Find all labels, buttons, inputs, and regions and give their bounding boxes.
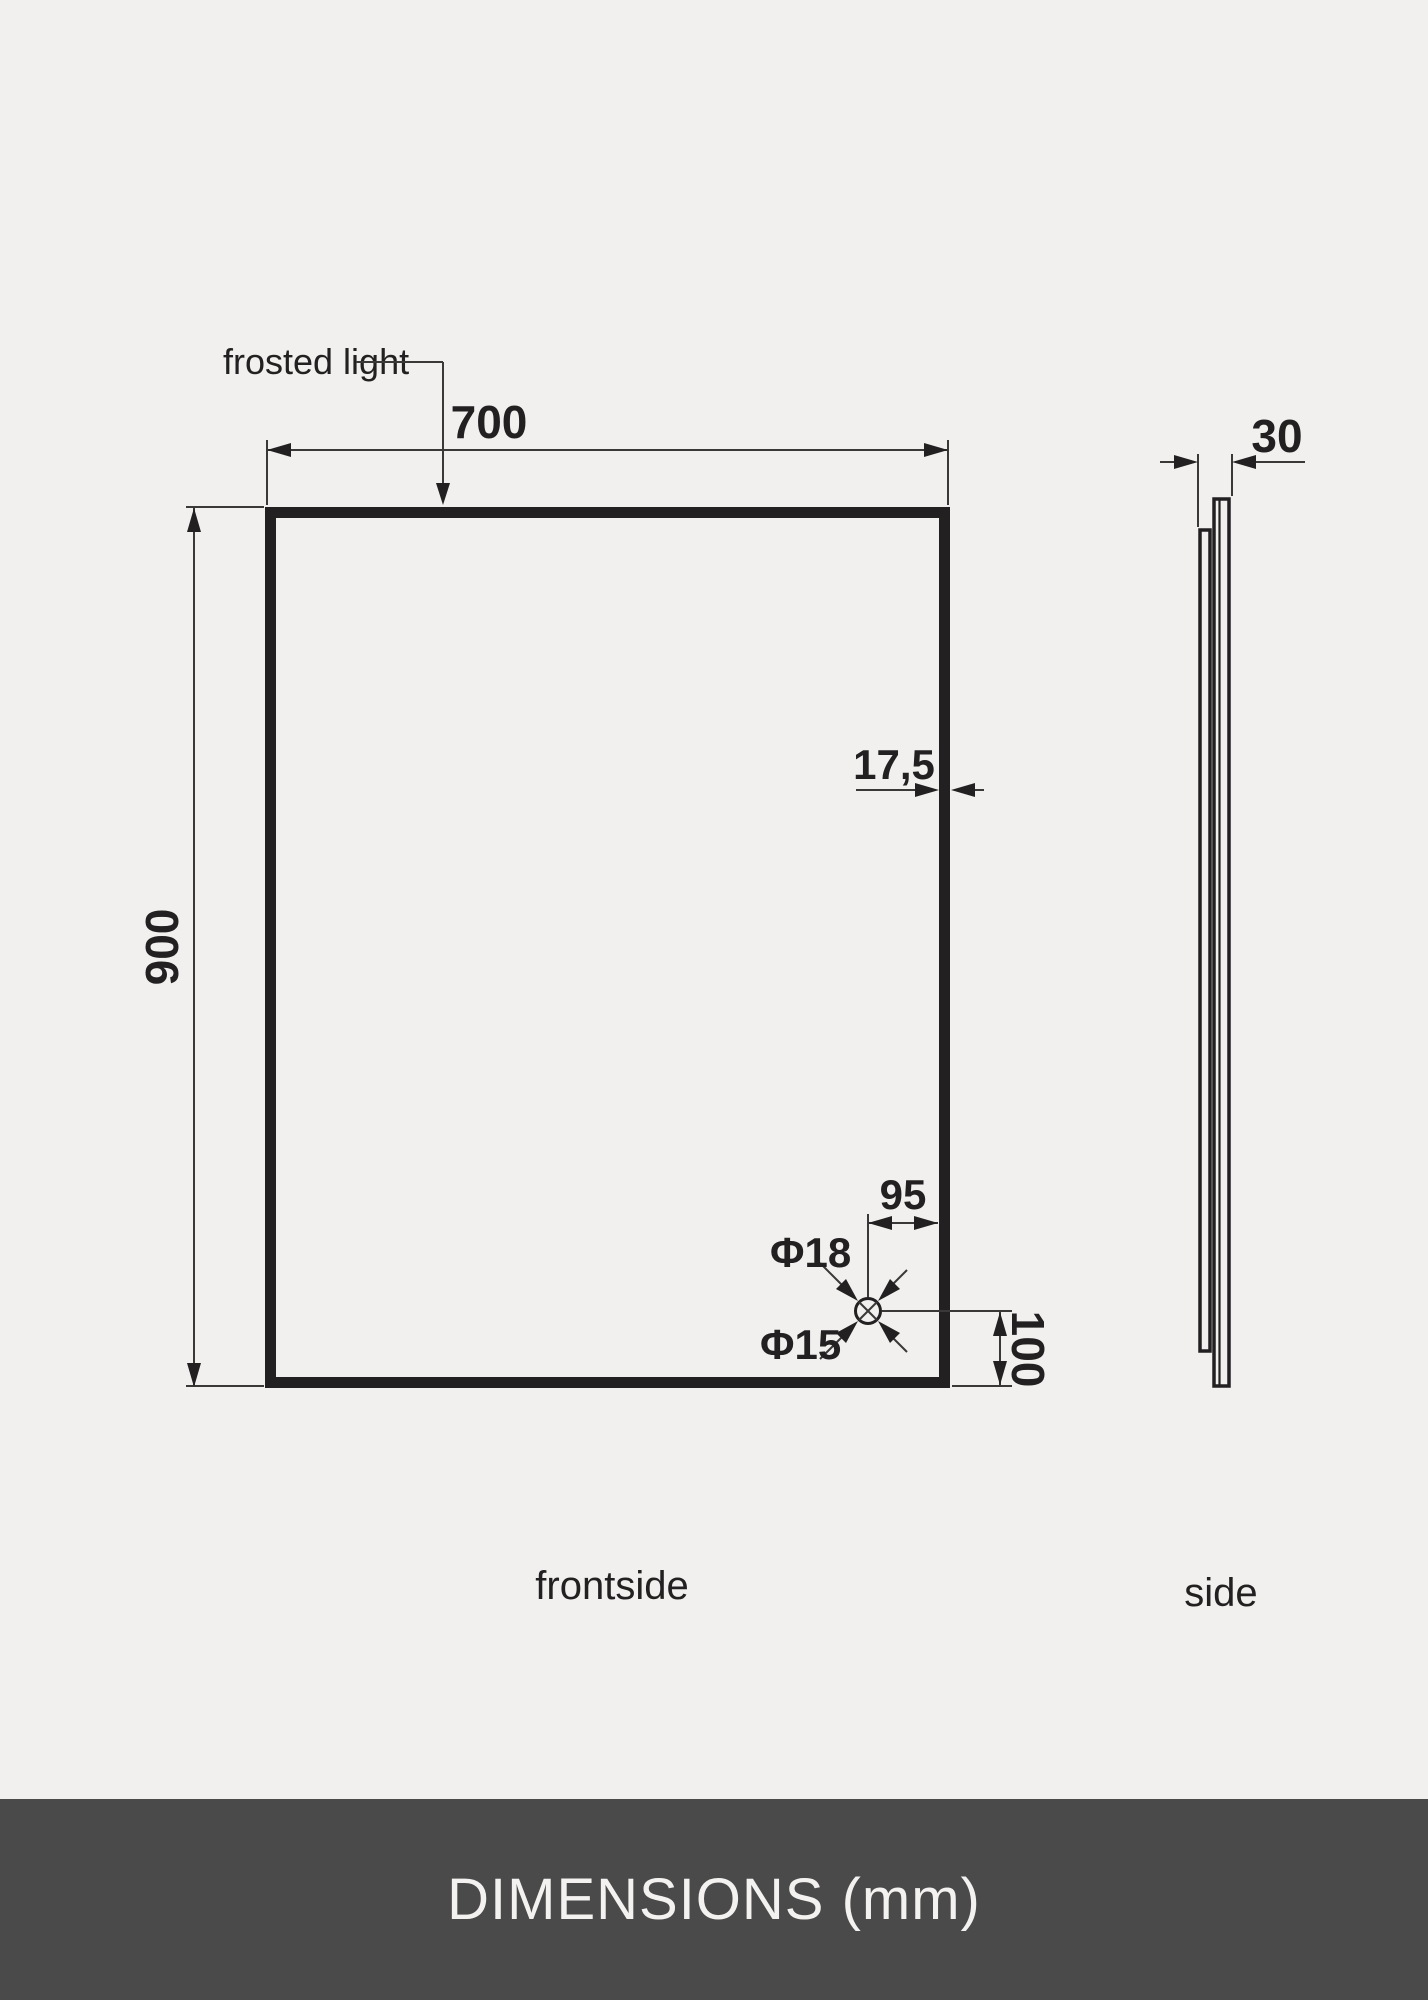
- side-view: 30 side: [1160, 410, 1305, 1615]
- hole-arrow-top-right: [878, 1279, 900, 1301]
- technical-drawing: frosted light 700 900: [0, 0, 1428, 1800]
- front-view-caption: frontside: [535, 1564, 688, 1608]
- side-view-back-panel: [1200, 530, 1210, 1351]
- depth-arrow-right: [1232, 455, 1256, 469]
- hole-leader-top-right: [892, 1270, 907, 1285]
- hole-leader-bottom-right: [892, 1337, 907, 1352]
- height-dimension: 900: [136, 507, 264, 1387]
- hole-offset-x-arrow-right: [914, 1216, 938, 1230]
- width-arrow-left: [267, 443, 291, 457]
- height-value: 900: [136, 909, 188, 986]
- frosted-light-leader-arrow: [436, 483, 450, 505]
- front-view: frosted light 700 900: [136, 341, 1054, 1608]
- hole-offset-x-value: 95: [880, 1171, 927, 1218]
- depth-arrow-left: [1174, 455, 1198, 469]
- hole-offset-y-dimension: 100: [882, 1311, 1054, 1388]
- hole-offset-y-value: 100: [1002, 1311, 1054, 1388]
- dimensions-sheet: frosted light 700 900: [0, 0, 1428, 2000]
- frame-thickness-dimension: 17,5: [853, 741, 984, 797]
- footer-bar: DIMENSIONS (mm): [0, 1799, 1428, 2000]
- footer-title: DIMENSIONS (mm): [447, 1866, 981, 1933]
- height-arrow-bottom: [187, 1363, 201, 1387]
- side-view-caption: side: [1184, 1571, 1257, 1615]
- hole-offset-x-dimension: 95: [868, 1171, 938, 1297]
- depth-dimension: 30: [1160, 410, 1305, 527]
- width-dimension: 700: [267, 396, 948, 505]
- width-value: 700: [451, 396, 528, 448]
- hole-inner-diameter-label: Φ15: [760, 1321, 841, 1368]
- hole-outer-diameter-label: Φ18: [770, 1229, 851, 1276]
- hole-arrow-bottom-right: [878, 1321, 900, 1343]
- height-arrow-top: [187, 508, 201, 532]
- hole-offset-x-arrow-left: [868, 1216, 892, 1230]
- frame-thickness-value: 17,5: [853, 741, 935, 788]
- width-arrow-right: [924, 443, 948, 457]
- depth-value: 30: [1251, 410, 1302, 462]
- frame-thickness-arrow-right: [951, 783, 975, 797]
- cable-hole-symbol: Φ18 Φ15: [760, 1229, 907, 1368]
- frosted-light-annotation: frosted light: [223, 341, 450, 505]
- side-view-front-panel: [1214, 499, 1229, 1386]
